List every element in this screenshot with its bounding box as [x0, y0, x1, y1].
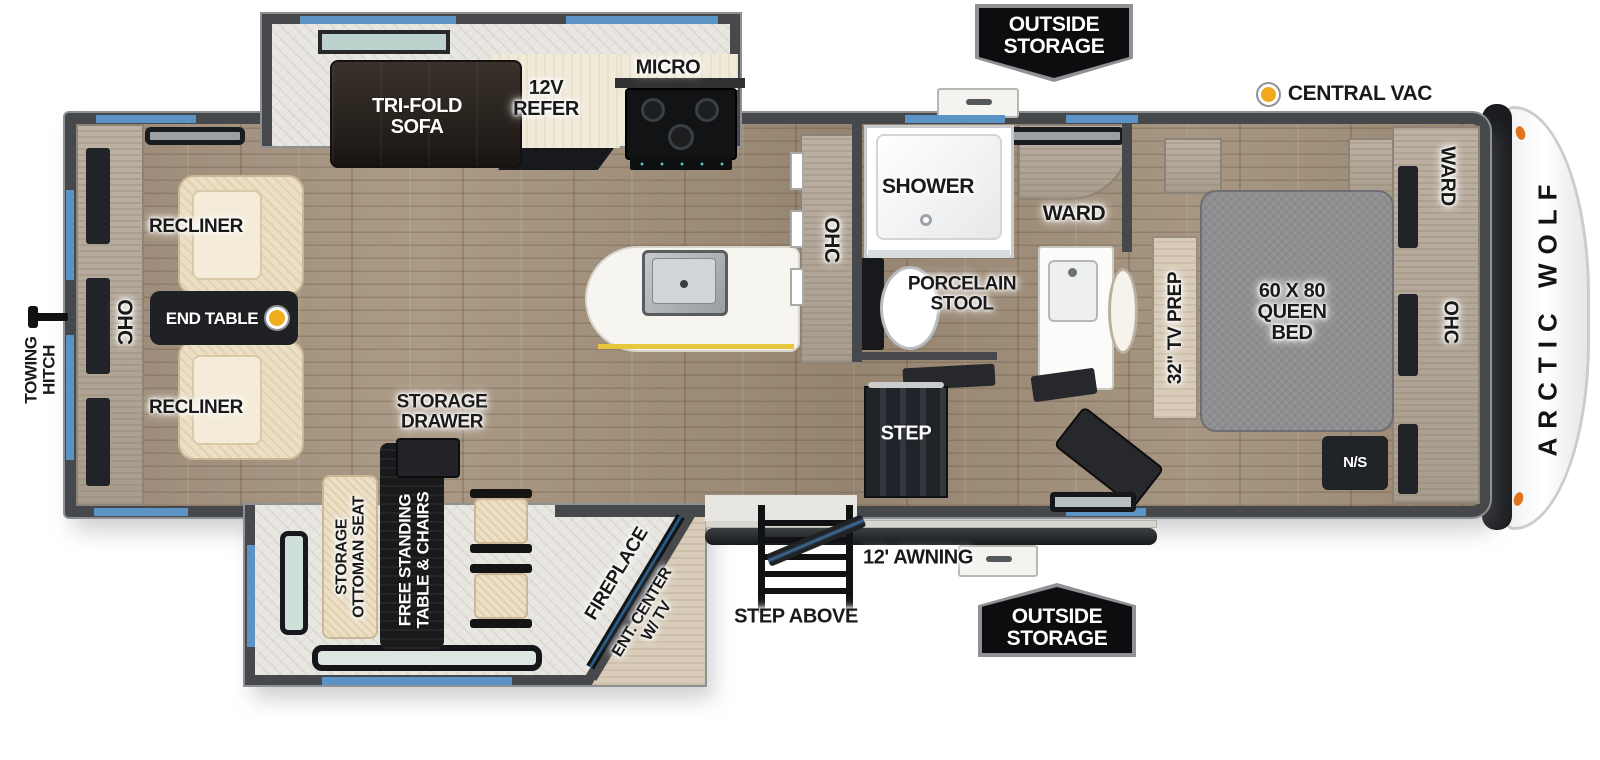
- range-hood: [615, 78, 745, 88]
- vanity-faucet-icon: [1068, 268, 1077, 277]
- outside-storage-door-top-handle-icon: [966, 99, 992, 105]
- floorplan-stage: ARCTIC WOLF TRI-FOLD SOFA 12V REFER MICR…: [0, 0, 1600, 760]
- ottoman-label: STORAGE OTTOMAN SEAT: [334, 496, 367, 618]
- shower-drain-icon: [920, 214, 932, 226]
- sofa-window: [318, 30, 450, 54]
- bath-wall-left: [852, 124, 862, 362]
- towing-hitch-bar-icon: [36, 313, 68, 321]
- micro-label: MICRO: [636, 58, 701, 79]
- roof-vent-bedroom: [1000, 127, 1125, 145]
- bed-label: 60 X 80 QUEEN BED: [1257, 281, 1326, 343]
- stove-burner-1-icon: [641, 98, 665, 122]
- dining-table-label: FREE STANDING TABLE & CHAIRS: [396, 492, 431, 629]
- pantry-shelf-3: [790, 268, 804, 306]
- window-slide-top-1: [300, 16, 456, 24]
- storage-drawer-label: STORAGE DRAWER: [397, 392, 488, 432]
- bedroom-window-frame: [1050, 492, 1136, 512]
- end-table-vac-dot-icon: [266, 307, 288, 329]
- window-top-bath: [905, 115, 1005, 123]
- entry-step-rung-5: [760, 588, 848, 594]
- outside-storage-door-bottom-handle-icon: [986, 556, 1012, 562]
- window-top-bedroom: [1066, 115, 1138, 123]
- step-label: STEP: [881, 424, 932, 445]
- bath-door: [1108, 268, 1138, 354]
- stove-knob-strip: [630, 158, 732, 170]
- refer-label: 12V REFER: [513, 78, 579, 120]
- recliner-bottom-label: RECLINER: [149, 398, 243, 418]
- window-dining-left: [247, 545, 255, 647]
- wardrobe-door-3: [1398, 424, 1418, 494]
- hall-ward-label: WARD: [1043, 203, 1106, 225]
- dining-chair-1-arm-top: [470, 489, 532, 498]
- awning-label: 12' AWNING: [863, 548, 973, 569]
- bedroom-step-rail: [868, 382, 944, 388]
- entry-step-rung-4: [760, 571, 848, 577]
- rear-ohc-label: OHC: [113, 299, 135, 344]
- island-accent-strip: [598, 344, 794, 349]
- window-dining-bottom: [322, 677, 512, 685]
- pantry-shelf-1: [790, 152, 804, 190]
- towing-hitch-knob-icon: [28, 306, 38, 328]
- dining-chair-1: [474, 498, 528, 544]
- wardrobe-door-2: [1398, 294, 1418, 376]
- bath-wall-right: [1122, 124, 1132, 252]
- rear-cabinet-door-2: [86, 278, 110, 374]
- dining-chair-2: [474, 573, 528, 619]
- rear-cabinet-door-3: [86, 398, 110, 486]
- outside-storage-top-label: OUTSIDE STORAGE: [1004, 14, 1105, 58]
- brand-label: ARCTIC WOLF: [1534, 176, 1561, 457]
- dining-chair-2-arm-bottom: [470, 619, 532, 628]
- dining-chair-2-arm-top: [470, 564, 532, 573]
- wardrobe-door-1: [1398, 166, 1418, 248]
- window-slide-top-2: [566, 16, 718, 24]
- shower-label: SHOWER: [882, 176, 974, 198]
- porcelain-stool-label: PORCELAIN STOOL: [908, 274, 1016, 314]
- roof-vent-living: [145, 127, 245, 145]
- end-table-label: END TABLE: [166, 310, 258, 328]
- outside-storage-bottom-label: OUTSIDE STORAGE: [1007, 606, 1108, 650]
- dining-window-left: [280, 531, 308, 635]
- central-vac-dot-icon: [1258, 84, 1279, 105]
- island-faucet-icon: [680, 280, 688, 288]
- sofa-label: TRI-FOLD SOFA: [372, 96, 462, 138]
- pantry-shelf-2: [790, 210, 804, 248]
- central-vac-label: CENTRAL VAC: [1288, 83, 1432, 105]
- stove-burner-3-icon: [668, 124, 694, 150]
- bath-wall-bottom: [852, 352, 997, 360]
- towing-hitch-label: TOWING HITCH: [22, 336, 57, 403]
- rear-cabinet-door-1: [86, 148, 110, 244]
- nightstand-label: N/S: [1343, 455, 1367, 471]
- front-ward-label: WARD: [1437, 146, 1458, 206]
- dining-chair-1-arm-bottom: [470, 544, 532, 553]
- front-ohc-label: OHC: [1440, 300, 1461, 343]
- entry-landing: [705, 495, 857, 521]
- storage-drawer-unit: [396, 438, 460, 478]
- window-bottom-left: [94, 508, 188, 516]
- window-rear-upper: [66, 190, 74, 280]
- tv-prep-label: 32" TV PREP: [1166, 272, 1186, 384]
- bed-ohc-cabinet: [1164, 138, 1222, 194]
- recliner-top-label: RECLINER: [149, 217, 243, 237]
- window-rear-lower: [66, 335, 74, 460]
- step-above-label: STEP ABOVE: [734, 607, 858, 628]
- stove-burner-2-icon: [695, 98, 719, 122]
- pantry-ohc-label: OHC: [820, 217, 842, 262]
- shower-glass: [868, 250, 1010, 258]
- window-top-left: [96, 115, 196, 123]
